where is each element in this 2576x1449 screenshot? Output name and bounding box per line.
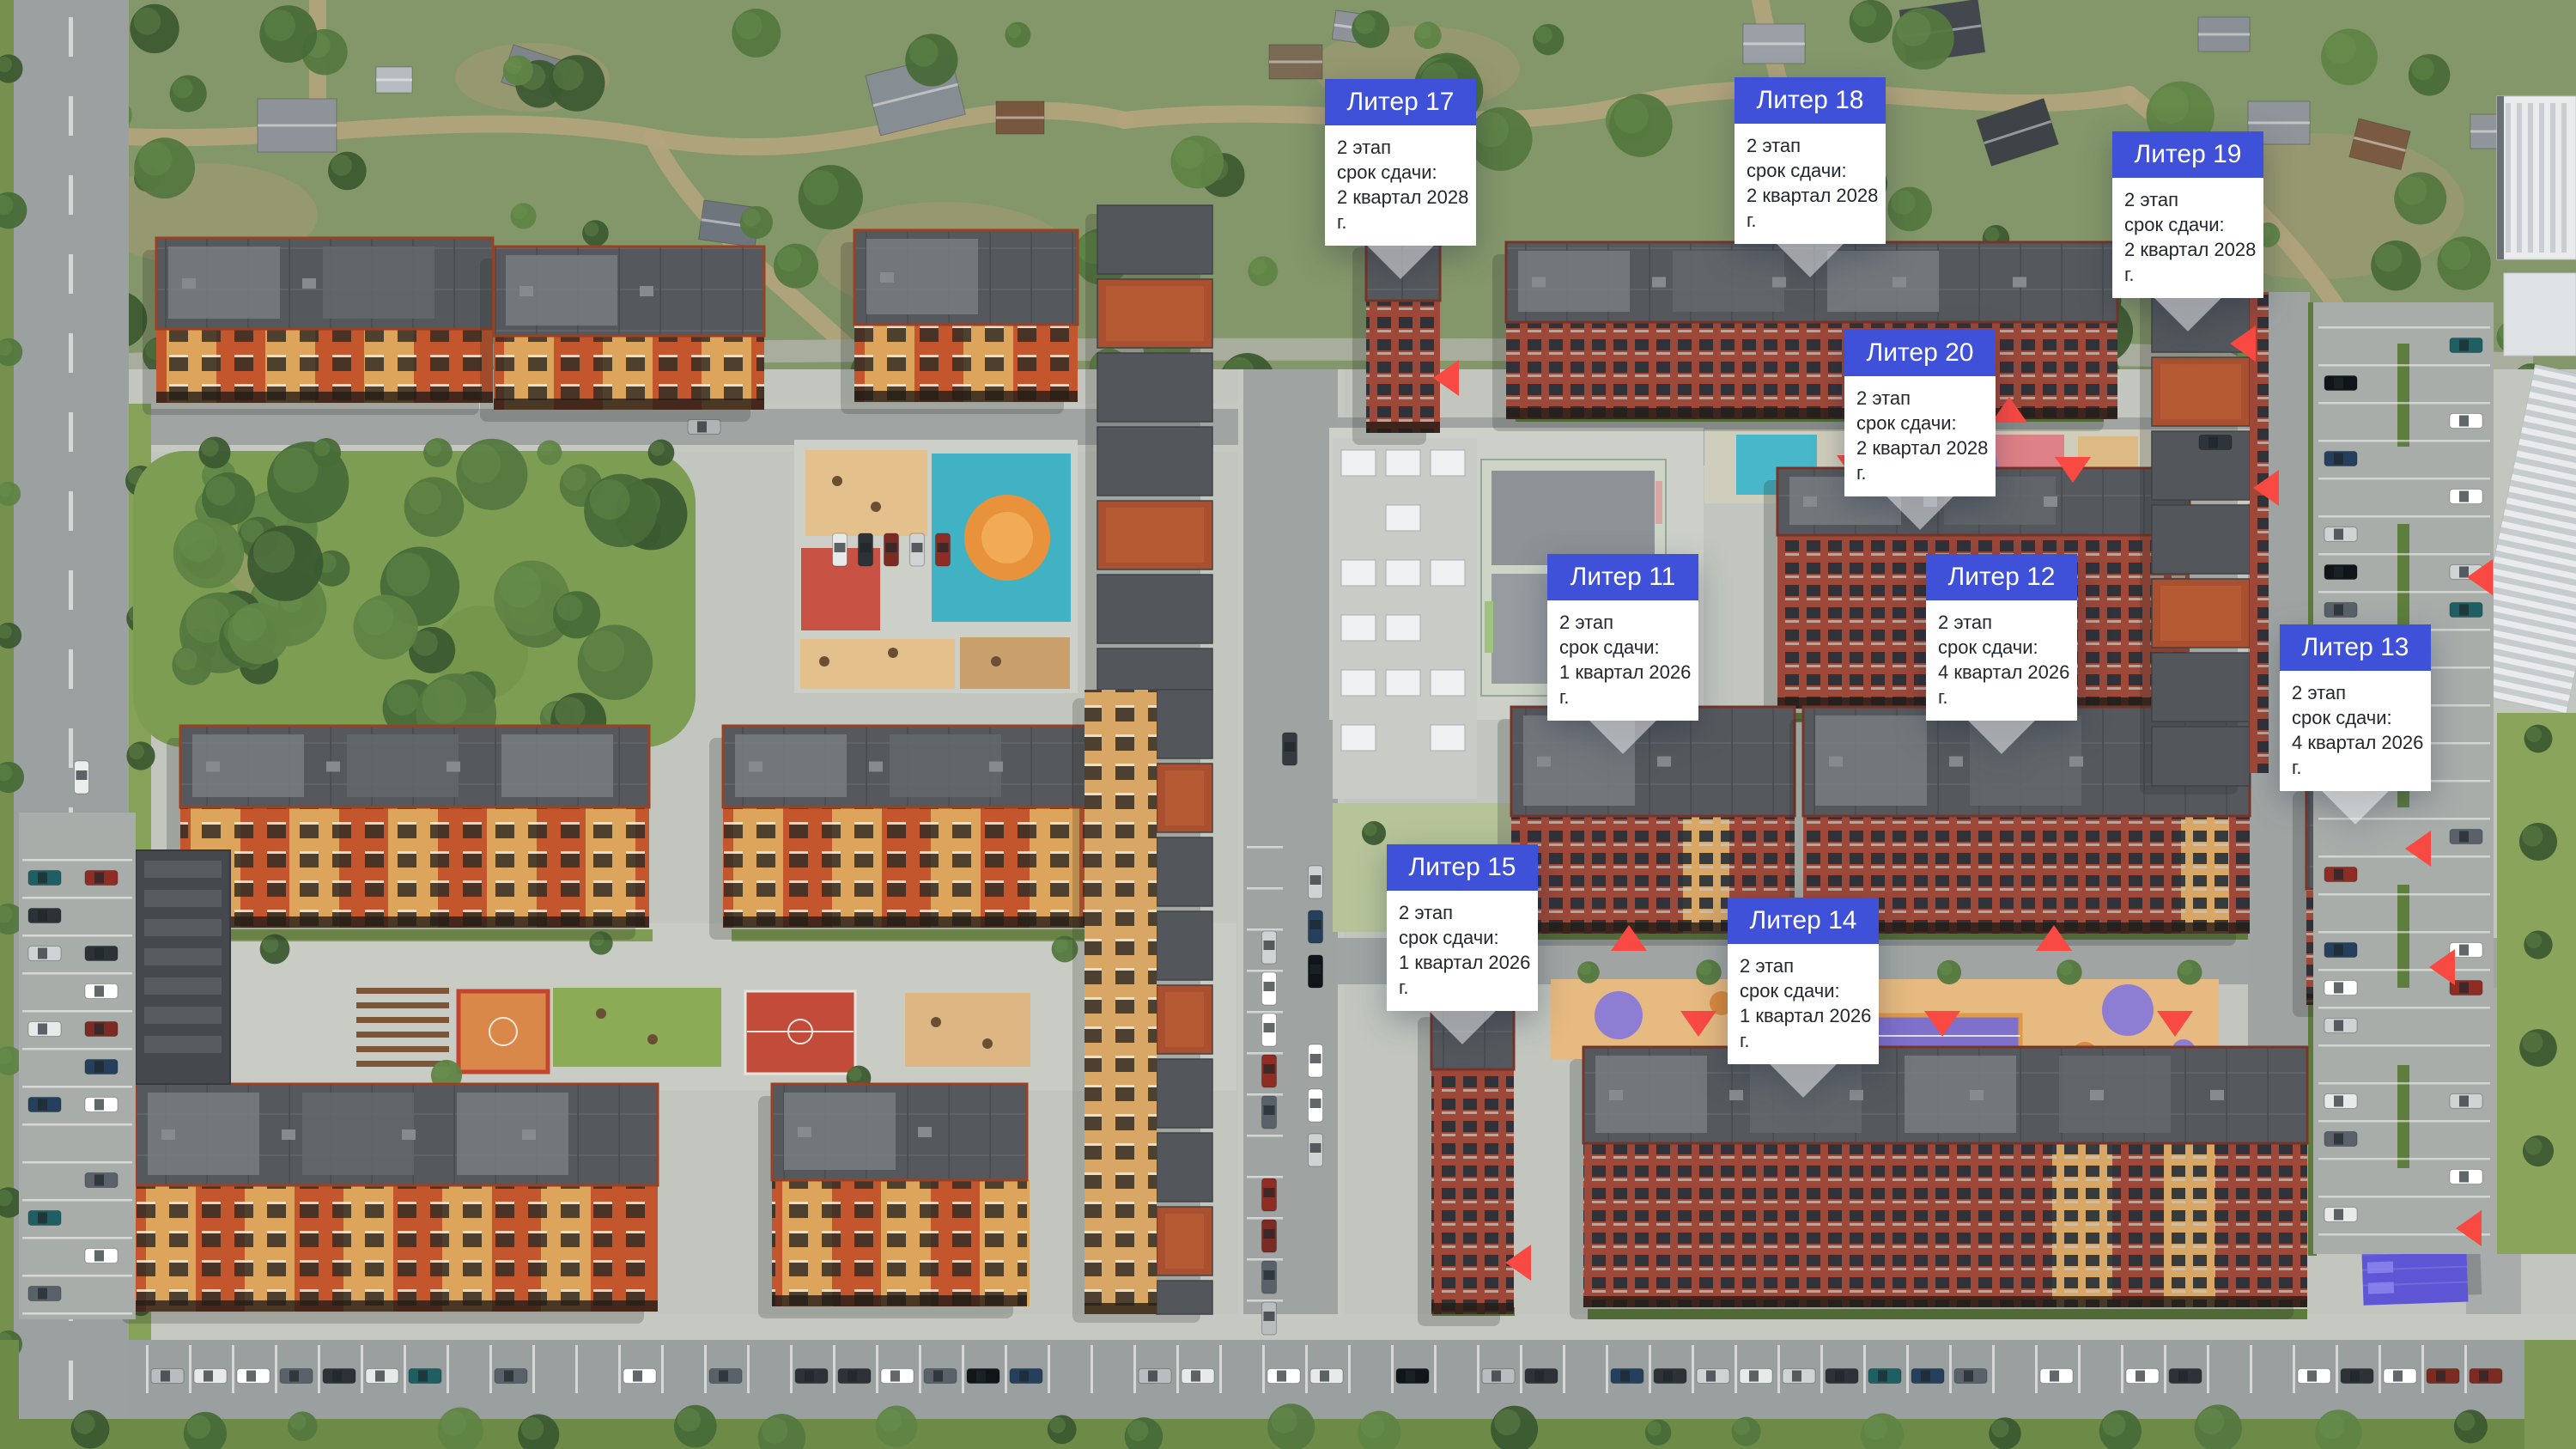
building-callout-liter-12[interactable]: Литер 12 2 этап срок сдачи: 4 квартал 20… <box>1926 554 2077 721</box>
car <box>194 1369 227 1384</box>
deadline-value: 4 квартал 2026 г. <box>2292 730 2424 780</box>
car <box>2324 603 2357 618</box>
building-callout-liter-13[interactable]: Литер 13 2 этап срок сдачи: 4 квартал 20… <box>2280 624 2431 791</box>
deadline-value: 1 квартал 2026 г. <box>1559 660 1692 709</box>
stage-text: 2 этап <box>1856 386 1989 411</box>
car <box>495 1369 527 1384</box>
car <box>910 533 925 566</box>
car <box>2384 1369 2416 1384</box>
deadline-label: срок сдачи: <box>1559 635 1692 660</box>
car <box>2324 1019 2357 1033</box>
car <box>2199 435 2232 450</box>
car <box>1309 955 1323 988</box>
car <box>1611 1369 1643 1384</box>
car <box>28 1211 61 1226</box>
car <box>795 1369 828 1384</box>
village-house <box>996 101 1044 134</box>
car <box>884 533 899 566</box>
building-callout-liter-15[interactable]: Литер 15 2 этап срок сдачи: 1 квартал 20… <box>1387 844 1538 1011</box>
car <box>881 1369 914 1384</box>
car <box>1783 1369 1815 1384</box>
building[interactable] <box>709 726 1105 940</box>
building[interactable] <box>122 1084 658 1324</box>
car <box>2324 1208 2357 1222</box>
car <box>1697 1369 1729 1384</box>
car <box>936 533 951 566</box>
car <box>2450 1170 2482 1184</box>
building[interactable] <box>1085 205 1212 698</box>
car <box>1525 1369 1558 1384</box>
car <box>2450 490 2482 504</box>
car <box>2126 1369 2159 1384</box>
car <box>28 1022 61 1037</box>
car <box>967 1369 999 1384</box>
building[interactable] <box>1570 1047 2307 1319</box>
deadline-value: 1 квартал 2026 г. <box>1399 950 1531 1000</box>
building-name[interactable]: Литер 18 <box>1735 77 1886 124</box>
car <box>1309 866 1323 898</box>
car <box>1262 1096 1277 1129</box>
car <box>366 1369 398 1384</box>
car <box>1309 1044 1323 1077</box>
car <box>2324 1132 2357 1147</box>
car <box>85 871 118 886</box>
car <box>28 1287 61 1301</box>
building-name[interactable]: Литер 20 <box>1844 330 1996 376</box>
building-name[interactable]: Литер 17 <box>1325 79 1476 125</box>
car <box>709 1369 742 1384</box>
building-name[interactable]: Литер 13 <box>2280 624 2431 671</box>
village-house <box>258 99 337 152</box>
car <box>2298 1369 2330 1384</box>
masterplan-page: Литер 17 2 этап срок сдачи: 2 квартал 20… <box>0 0 2576 1449</box>
car <box>28 947 61 961</box>
car <box>1654 1369 1686 1384</box>
car <box>85 1022 118 1037</box>
car <box>2324 376 2357 391</box>
deadline-label: срок сдачи: <box>1337 160 1469 185</box>
building-callout-liter-18[interactable]: Литер 18 2 этап срок сдачи: 2 квартал 20… <box>1735 77 1886 244</box>
car <box>688 420 720 435</box>
car <box>1309 1089 1323 1122</box>
building[interactable] <box>1072 690 1212 1323</box>
car <box>623 1369 656 1384</box>
deadline-value: 1 квартал 2026 г. <box>1740 1003 1872 1053</box>
car <box>1309 1134 1323 1166</box>
car <box>2324 943 2357 958</box>
building-name[interactable]: Литер 14 <box>1728 898 1879 944</box>
car <box>1262 1302 1277 1335</box>
deadline-value: 2 квартал 2028 г. <box>1856 435 1989 485</box>
car <box>85 1098 118 1112</box>
building-callout-liter-19[interactable]: Литер 19 2 этап срок сдачи: 2 квартал 20… <box>2112 131 2263 298</box>
deadline-label: срок сдачи: <box>2292 705 2424 730</box>
car <box>2450 414 2482 429</box>
deadline-value: 2 квартал 2028 г. <box>2124 237 2257 287</box>
car <box>2324 868 2357 882</box>
building[interactable] <box>143 238 493 415</box>
car <box>2450 338 2482 353</box>
car <box>838 1369 871 1384</box>
car <box>85 947 118 961</box>
car <box>2324 1094 2357 1109</box>
deadline-label: срок сдачи: <box>1747 158 1879 183</box>
car <box>2450 830 2482 844</box>
car <box>28 1098 61 1112</box>
building-callout-liter-17[interactable]: Литер 17 2 этап срок сдачи: 2 квартал 20… <box>1325 79 1476 246</box>
building-name[interactable]: Литер 15 <box>1387 844 1538 891</box>
car <box>85 1173 118 1188</box>
building-callout-liter-14[interactable]: Литер 14 2 этап срок сдачи: 1 квартал 20… <box>1728 898 1879 1064</box>
car <box>1010 1369 1042 1384</box>
building[interactable] <box>167 726 649 940</box>
deadline-label: срок сдачи: <box>2124 212 2257 237</box>
car <box>1262 972 1277 1005</box>
car <box>28 909 61 923</box>
village-house <box>1269 45 1322 79</box>
building[interactable] <box>2140 283 2269 795</box>
stage-text: 2 этап <box>1938 610 2070 635</box>
car <box>280 1369 313 1384</box>
car <box>1309 910 1323 943</box>
car <box>85 984 118 999</box>
building-name[interactable]: Литер 19 <box>2112 131 2263 178</box>
car <box>2324 981 2357 995</box>
car <box>2324 565 2357 580</box>
car <box>28 871 61 886</box>
building[interactable] <box>841 230 1078 414</box>
car <box>323 1369 355 1384</box>
car <box>2450 603 2482 618</box>
village-house <box>376 67 412 93</box>
car <box>1396 1369 1429 1384</box>
car <box>1267 1369 1300 1384</box>
car <box>1182 1369 1214 1384</box>
car <box>1262 1014 1277 1046</box>
deadline-label: срок сдачи: <box>1740 978 1872 1003</box>
stage-text: 2 этап <box>1399 900 1531 925</box>
car <box>1262 1261 1277 1294</box>
car <box>1262 1055 1277 1087</box>
car <box>924 1369 957 1384</box>
car <box>85 1060 118 1075</box>
deadline-value: 2 квартал 2028 г. <box>1747 183 1879 233</box>
car <box>2470 1369 2502 1384</box>
deadline-label: срок сдачи: <box>1399 925 1531 950</box>
stage-text: 2 этап <box>1740 953 1872 978</box>
stage-text: 2 этап <box>1747 133 1879 158</box>
building-name[interactable]: Литер 11 <box>1547 554 1698 600</box>
deadline-label: срок сдачи: <box>1938 635 2070 660</box>
car <box>1262 931 1277 964</box>
village-house <box>1743 24 1805 64</box>
building[interactable] <box>480 247 764 422</box>
park <box>133 437 696 754</box>
car <box>2427 1369 2459 1384</box>
car <box>1310 1369 1343 1384</box>
car <box>1740 1369 1772 1384</box>
car <box>1826 1369 1858 1384</box>
car <box>2169 1369 2202 1384</box>
car <box>2450 1094 2482 1109</box>
car <box>1911 1369 1944 1384</box>
car <box>85 1249 118 1263</box>
deadline-label: срок сдачи: <box>1856 411 1989 435</box>
building-callout-liter-20[interactable]: Литер 20 2 этап срок сдачи: 2 квартал 20… <box>1844 330 1996 496</box>
car <box>2324 452 2357 466</box>
building[interactable] <box>758 1084 1030 1318</box>
car <box>833 533 848 566</box>
car <box>1262 1220 1277 1252</box>
car <box>1283 733 1297 765</box>
car <box>1262 1178 1277 1211</box>
stage-text: 2 этап <box>1337 135 1469 160</box>
deadline-value: 4 квартал 2026 г. <box>1938 660 2070 709</box>
car <box>151 1369 184 1384</box>
stage-text: 2 этап <box>2292 680 2424 705</box>
garage-building[interactable] <box>136 850 230 1084</box>
car <box>75 761 89 794</box>
car <box>1954 1369 1987 1384</box>
building-name[interactable]: Литер 12 <box>1926 554 2077 600</box>
car <box>2324 527 2357 542</box>
village-house <box>2198 17 2250 52</box>
stage-text: 2 этап <box>1559 610 1692 635</box>
car <box>1868 1369 1901 1384</box>
car <box>409 1369 441 1384</box>
car <box>1139 1369 1171 1384</box>
deadline-value: 2 квартал 2028 г. <box>1337 185 1469 234</box>
building-callout-liter-11[interactable]: Литер 11 2 этап срок сдачи: 1 квартал 20… <box>1547 554 1698 721</box>
car <box>1482 1369 1515 1384</box>
building[interactable] <box>1418 1005 1514 1326</box>
car <box>2341 1369 2373 1384</box>
car <box>237 1369 270 1384</box>
car <box>859 533 873 566</box>
car <box>2040 1369 2073 1384</box>
stage-text: 2 этап <box>2124 187 2257 212</box>
